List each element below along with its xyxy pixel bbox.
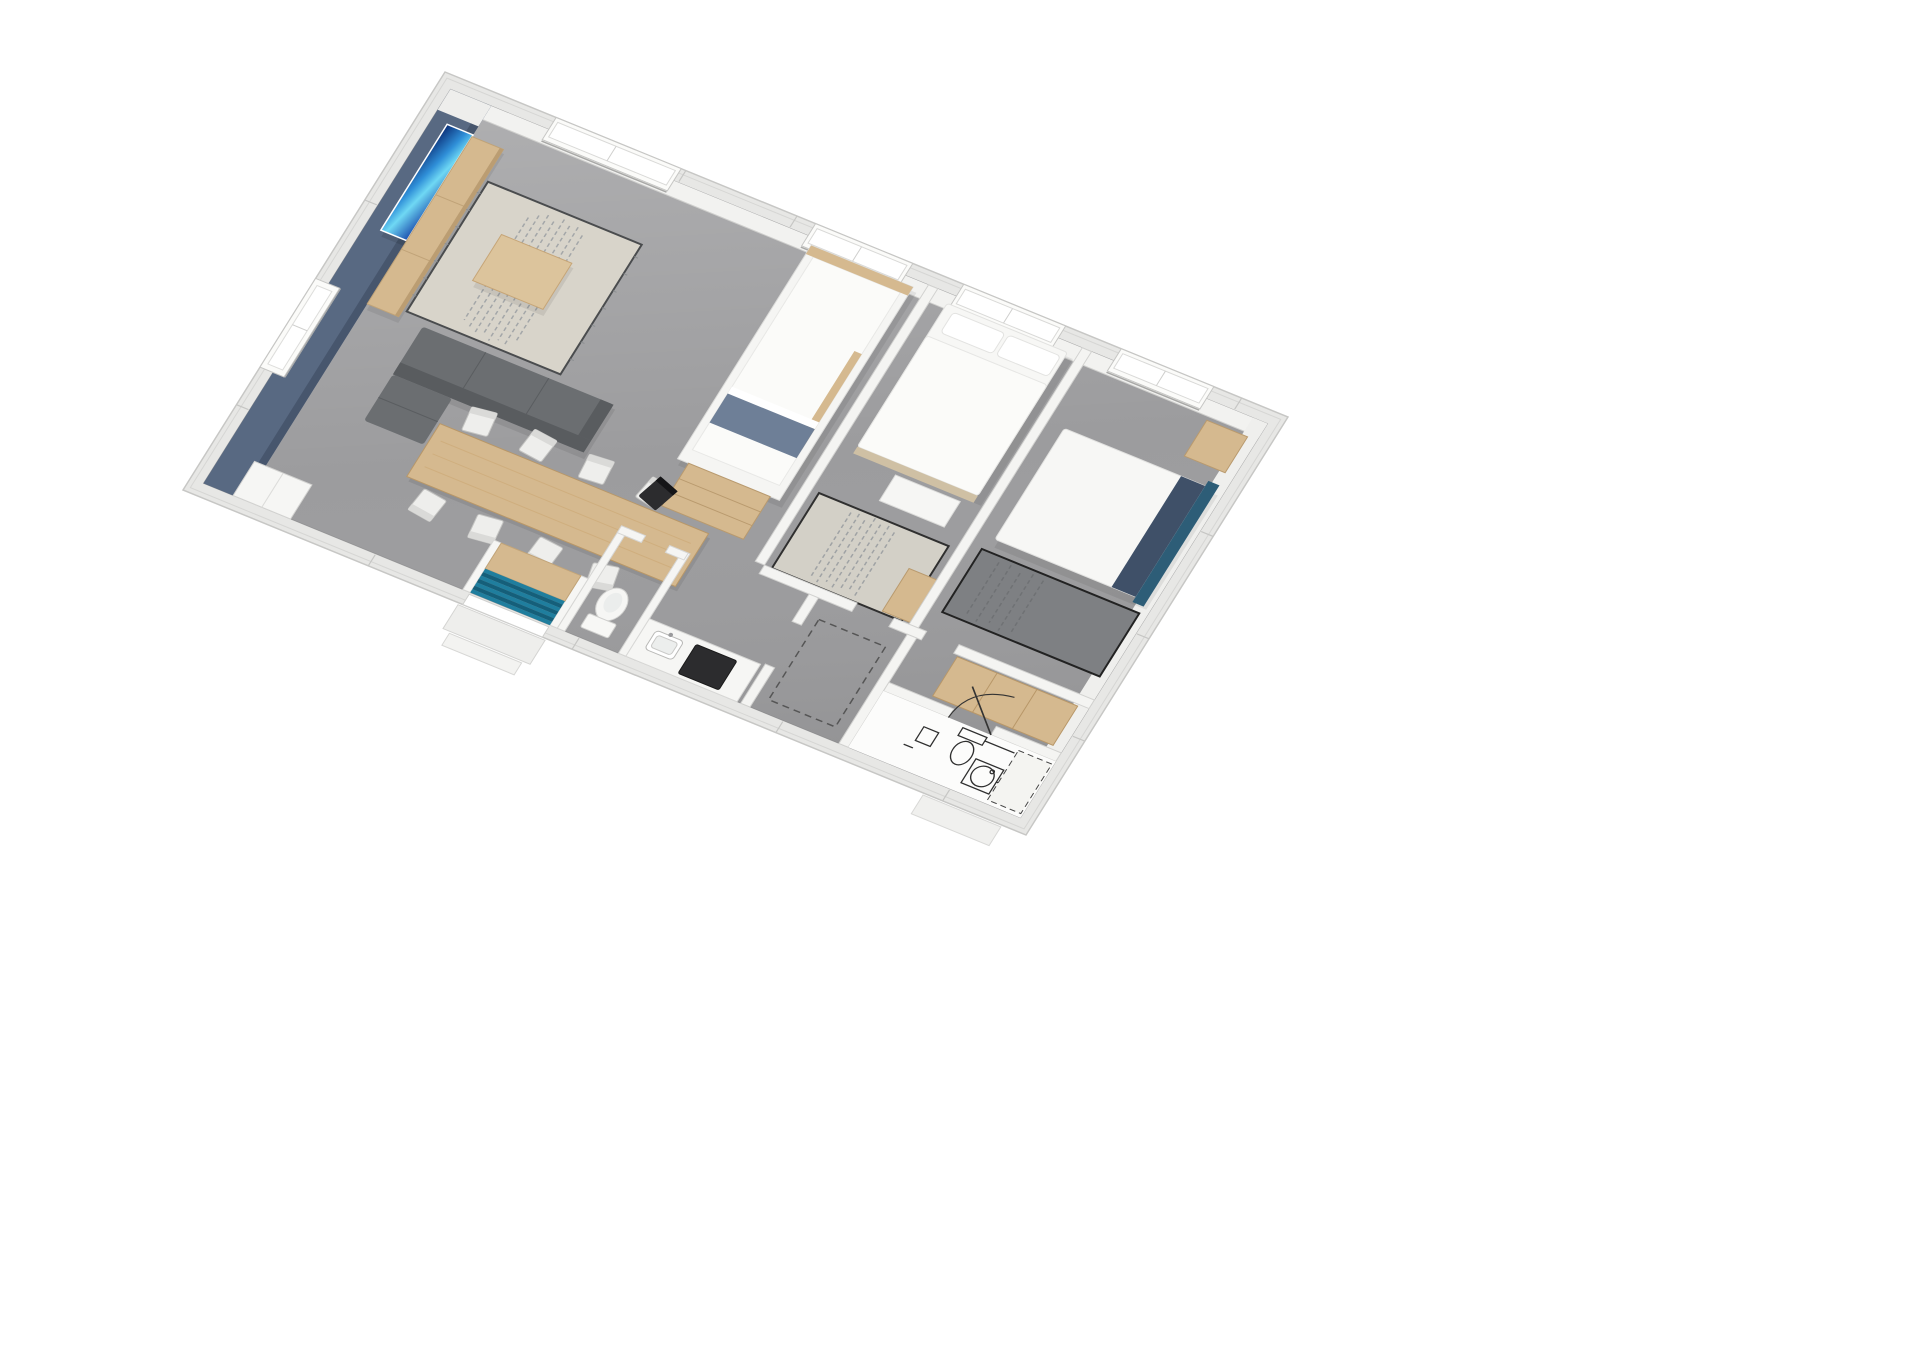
floorplan-canvas[interactable] xyxy=(0,0,1920,1358)
floorplan-svg xyxy=(183,72,1288,835)
floorplan-unit xyxy=(183,72,1288,835)
